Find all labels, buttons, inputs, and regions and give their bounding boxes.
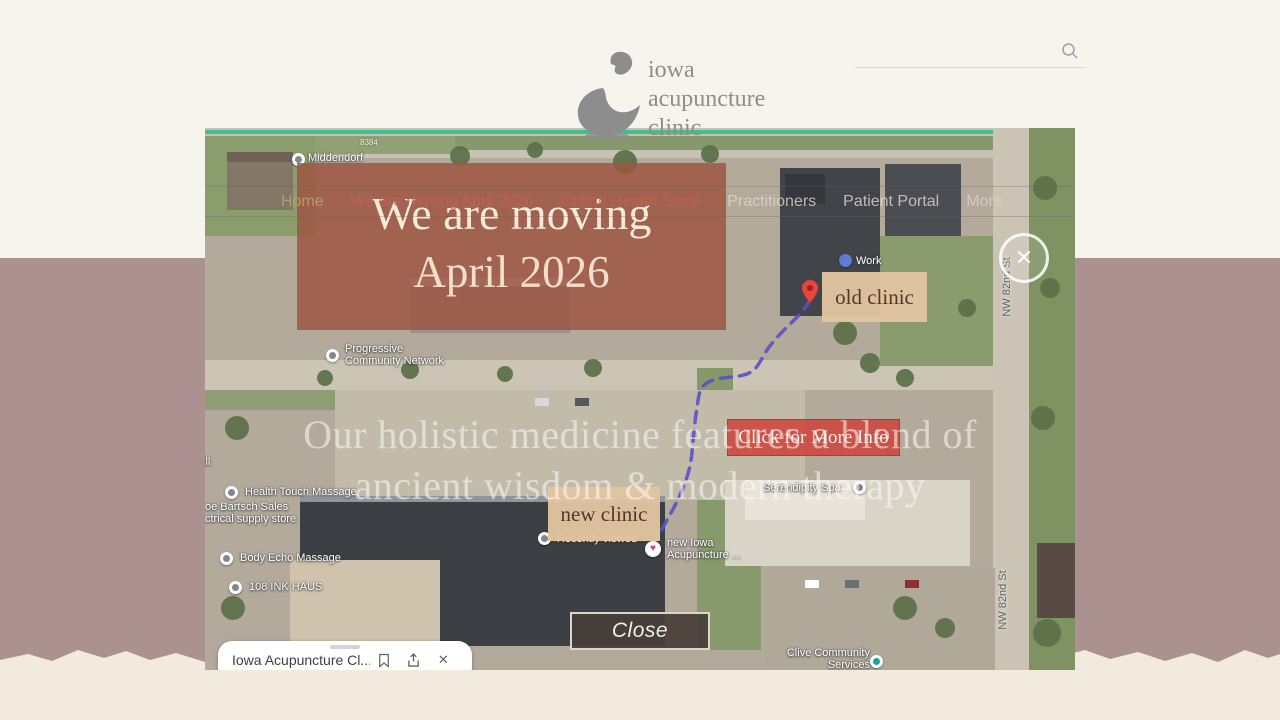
map-label-health-touch: Health Touch Massage [245,486,357,498]
search-icon[interactable] [1061,42,1079,60]
nav-item-moving[interactable]: We are moving April 2026 [351,193,534,211]
poi-pin-health-touch [225,486,238,499]
map-label-line: Acupuncture ... [667,549,741,561]
map-label-bartsch: oe Bartsch Sales ctrical supply store [205,501,296,525]
map-label-body-echo: Body Echo Massage [240,552,341,564]
nav-item-home[interactable]: Home [281,193,324,211]
modal-close-x-button[interactable]: ✕ [999,233,1049,283]
map-label-clive: Clive Community Services [765,647,870,670]
logo: iowa acupuncture clinic [573,50,765,143]
search-input[interactable] [855,36,1085,68]
map-label-new-iowa: new Iowa Acupuncture ... [667,537,741,561]
map-label-line: Progressive [345,343,444,355]
map-label-line: oe Bartsch Sales [205,501,296,513]
map-label-work: Work [856,255,881,267]
new-clinic-label: new clinic [548,487,660,541]
heart-pin-new-iowa: ♥ [645,541,661,557]
map-label-line: Community Network [345,355,444,367]
search [855,36,1085,68]
poi-pin-ink-haus [229,581,242,594]
share-icon[interactable] [399,649,428,670]
map-label-ink-haus: 108 INK HAUS [249,581,322,593]
poi-pin-clive [870,655,883,668]
moving-banner: We are moving April 2026 [297,163,726,330]
page: { "header": { "logo": { "lines": ["iowa"… [0,0,1280,720]
logo-line: iowa [648,56,765,85]
more-info-button[interactable]: Click for More Info [727,419,900,456]
map-label-route-8384: 8384 [360,137,378,149]
place-card-title: Iowa Acupuncture Cl... [232,652,370,668]
card-close-icon[interactable]: ✕ [429,649,458,670]
close-icon: ✕ [1015,245,1033,271]
poi-pin-serendipity [853,481,866,494]
nav-item-patient-portal[interactable]: Patient Portal [843,193,939,211]
bookmark-icon[interactable] [370,649,399,670]
old-clinic-pin-icon [800,279,820,305]
nav-item-practitioners[interactable]: Practitioners [727,193,816,211]
map-label-line: Services [765,659,870,670]
map-label-line: Clive Community [765,647,870,659]
map-label-line: ctrical supply store [205,513,296,525]
nav-item-more[interactable]: More [966,193,1002,211]
close-button[interactable]: Close [570,612,710,650]
work-briefcase-icon [839,254,852,267]
logo-mark-icon [573,50,645,140]
poi-pin-body-echo [220,552,233,565]
map-label-progressive: Progressive Community Network [345,343,444,367]
map-label-serendipity: Serendipity Spa [763,482,841,494]
street-label-nw82nd-bottom: NW 82nd St [997,560,1011,640]
poi-pin-progressive [326,349,339,362]
logo-line: acupuncture [648,85,765,114]
logo-text: iowa acupuncture clinic [648,50,765,143]
logo-line: clinic [648,114,765,143]
nav-item-store[interactable]: Online Health Store [561,193,701,211]
map-label-line: new Iowa [667,537,741,549]
gmaps-place-card: Iowa Acupuncture Cl... ✕ [218,641,472,670]
map-label-grill-partial: ill [205,456,210,468]
banner-line2: April 2026 [297,243,726,301]
old-clinic-label: old clinic [822,272,927,322]
